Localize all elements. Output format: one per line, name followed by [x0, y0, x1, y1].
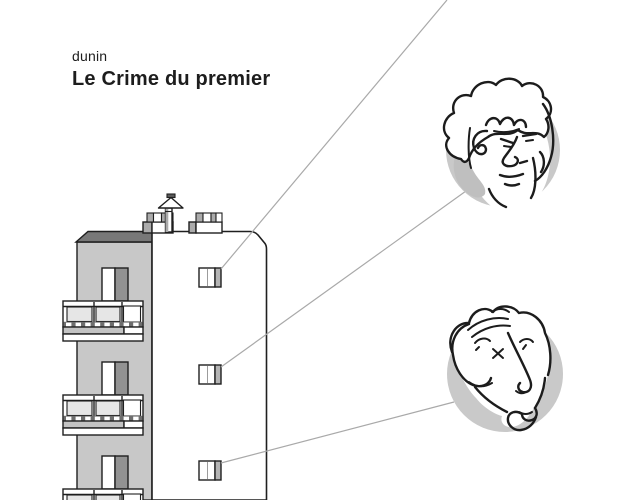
portrait-top[interactable]: [444, 79, 560, 212]
window-bottom-floor[interactable]: [199, 461, 221, 480]
portrait-bottom[interactable]: [447, 306, 563, 432]
window-middle-floor[interactable]: [199, 365, 221, 384]
window-shade: [215, 365, 221, 384]
window-shade: [215, 461, 221, 480]
chimney-cap-block: [211, 213, 216, 222]
chimney-side: [189, 222, 196, 233]
chimney-front: [196, 222, 222, 233]
chimney-cap-block: [216, 213, 222, 222]
chimney-right: [189, 213, 222, 233]
building: [63, 194, 267, 500]
window-top-floor[interactable]: [199, 268, 221, 287]
vent-cone: [159, 198, 184, 209]
chimney-cap-block: [147, 213, 154, 222]
chimney-cap-block: [196, 213, 203, 222]
chimney-cap-block: [154, 213, 162, 222]
chimney-cap-block: [203, 213, 211, 222]
cover-page: dunin Le Crime du premier: [0, 0, 630, 500]
cover-illustration: [0, 0, 630, 500]
vent-cap: [167, 194, 175, 198]
window-shade: [215, 268, 221, 287]
chimney-side: [143, 222, 152, 233]
